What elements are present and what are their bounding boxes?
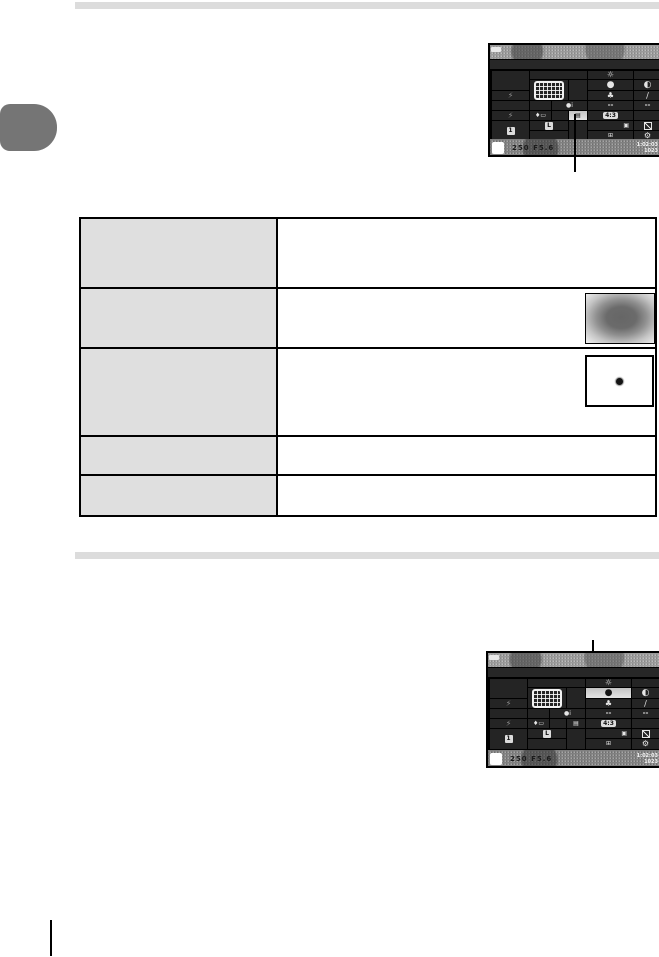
contrast-icon: ◐: [642, 689, 650, 698]
panel-cell-contrast: ◐: [632, 688, 659, 698]
panel-cell-metering: ●: [588, 80, 633, 90]
placeholder-value: --: [645, 102, 651, 109]
panel-cell-esp-metering: [528, 688, 566, 708]
spot-metering-diagram: [585, 355, 654, 407]
image-size-icon: ▤: [573, 721, 579, 727]
shots-remaining: 1023: [644, 759, 658, 765]
panel-cell-empty: [569, 121, 587, 141]
touch-shutter-icon: [490, 753, 502, 765]
panel-cell-frames: ▣: [588, 121, 633, 130]
image-quality-badge: L: [545, 122, 553, 130]
flash-icon: ⚡: [508, 112, 514, 120]
section-divider-bar-top: [75, 2, 659, 9]
table-description-cell: [278, 476, 655, 515]
table-term-cell: [81, 289, 278, 347]
panel-cell-contrast: ◐: [634, 80, 659, 90]
panel-cell-exposure-shift: [634, 121, 659, 130]
stabilizer-badge: 1: [505, 735, 513, 743]
frames-icon: ▣: [621, 731, 627, 737]
table-row: [81, 289, 655, 349]
panel-cell-stabilizer: 1: [492, 121, 529, 141]
remaining-readout: 1:02:031023: [637, 142, 658, 154]
panel-cell-unset: --: [632, 709, 659, 718]
image-size-icon: ▤: [575, 113, 581, 119]
image-quality-badge: L: [543, 730, 551, 738]
live-view-image-top: [490, 45, 659, 59]
panel-cell-exposure-shift: [632, 729, 659, 738]
panel-cell-white-balance: ☼: [586, 679, 631, 687]
shutter-speed-value: 250: [512, 144, 530, 152]
flash-icon: ⚡: [506, 700, 512, 708]
white-balance-icon: ☼: [605, 679, 612, 687]
chapter-side-tab: [0, 104, 57, 151]
table-row: [81, 219, 655, 289]
contrast-icon: ◐: [644, 81, 652, 90]
panel-info-row: [490, 60, 659, 69]
panel-cell-empty: [550, 719, 566, 728]
section-divider-bar-middle: [75, 552, 659, 559]
esp-metering-grid-icon: [534, 81, 564, 100]
panel-cell-empty: [552, 111, 568, 120]
panel-cell-empty: [490, 709, 527, 718]
table-row: [81, 476, 655, 515]
color-icon: ♣: [605, 700, 612, 708]
panel-cell-frames: ▣: [586, 729, 631, 738]
edit-icon: ⊞: [606, 741, 611, 747]
table-description-cell: [278, 219, 655, 287]
exposure-shift-icon: [642, 730, 650, 738]
sharpness-icon: ∕: [646, 92, 649, 100]
table-row: [81, 349, 655, 437]
table-description-cell: [278, 349, 655, 435]
info-icon: ●i: [564, 711, 571, 717]
aperture-value: F5.6: [533, 144, 554, 152]
callout-line-top: [574, 114, 576, 172]
panel-cell-empty: [632, 719, 659, 728]
exposure-readout: 250 F5.6: [512, 144, 554, 152]
remaining-readout: 1:02:031023: [637, 753, 658, 765]
aperture-value: F5.6: [531, 755, 552, 763]
aspect-ratio-badge: 4:3: [603, 112, 618, 119]
panel-info-row: [488, 668, 659, 677]
panel-cell-empty: [567, 729, 585, 749]
panel-cell-flash-comp: ♦▭: [528, 719, 549, 728]
table-row: [81, 437, 655, 476]
esp-metering-grid-icon: [532, 689, 562, 708]
panel-cell-empty: [567, 688, 585, 708]
aspect-ratio-badge: 4:3: [601, 720, 616, 727]
panel-cell-info: ●i: [550, 709, 585, 718]
live-view-image-top: [488, 653, 659, 667]
exposure-readout: 250 F5.6: [510, 755, 552, 763]
panel-cell-info: ●i: [552, 101, 587, 110]
center-weighted-metering-diagram: [585, 293, 655, 344]
touch-shutter-icon: [492, 142, 504, 154]
stabilizer-badge: 1: [507, 127, 515, 135]
panel-cell-aspect-ratio: 4:3: [588, 111, 633, 120]
panel-cell-empty: [634, 111, 659, 120]
panel-cell-flash-mode: ⚡: [492, 91, 529, 100]
panel-cell-empty: [530, 101, 551, 110]
table-term-cell: [81, 349, 278, 435]
gear-icon: ⚙: [642, 740, 649, 748]
flash-comp-icon: ♦▭: [535, 113, 546, 119]
panel-cell-flash-mode: ⚡: [492, 111, 529, 120]
placeholder-value: --: [608, 102, 614, 109]
flash-icon: ⚡: [508, 92, 514, 100]
shots-remaining: 1023: [644, 148, 658, 154]
panel-cell-white-balance: ☼: [588, 71, 633, 79]
super-control-panel: ☼ ● ◐ ⚡ ♣ ∕ ●i -- -- ⚡ ♦▭ ▤ 4:3 1 L ▣ ⊞ …: [488, 653, 659, 766]
white-balance-icon: ☼: [607, 71, 614, 79]
table-term-cell: [81, 476, 278, 515]
panel-cell-empty: [492, 71, 529, 90]
panel-cell-unset: --: [588, 101, 633, 110]
panel-cell-flash-comp: ♦▭: [530, 111, 551, 120]
spot-metering-dot: [616, 378, 623, 385]
panel-cell-empty: [528, 679, 585, 687]
placeholder-value: --: [643, 710, 649, 717]
recording-indicator: [489, 655, 499, 660]
table-term-cell: [81, 437, 278, 474]
panel-cell-image-quality: L: [530, 121, 568, 130]
panel-cell-metering: ●: [586, 688, 631, 698]
metering-table: [79, 217, 657, 517]
panel-cell-flash-mode: ⚡: [490, 719, 527, 728]
panel-cell-image-quality: L: [528, 729, 566, 738]
panel-cell-saturation: ♣: [586, 699, 631, 708]
metering-icon: ●: [607, 81, 615, 90]
panel-cell-saturation: ♣: [588, 91, 633, 100]
panel-cell-unset: --: [586, 709, 631, 718]
panel-cell-sharpness: ∕: [634, 91, 659, 100]
placeholder-value: --: [606, 710, 612, 717]
footer-divider-line: [50, 920, 52, 956]
info-icon: ●i: [566, 103, 573, 109]
panel-cell-edit: ⊞: [586, 739, 631, 749]
panel-cell-empty: [492, 101, 529, 110]
panel-cell-image-size: ▤: [567, 719, 585, 728]
panel-cell-image-size: ▤: [569, 111, 587, 120]
panel-cell-esp-metering: [530, 80, 568, 100]
table-description-cell: [278, 437, 655, 474]
metering-icon: ●: [605, 689, 613, 698]
shutter-speed-value: 250: [510, 755, 528, 763]
panel-cell-sharpness: ∕: [632, 699, 659, 708]
panel-cell-empty: [530, 71, 587, 79]
recording-indicator: [491, 47, 501, 52]
sharpness-icon: ∕: [644, 700, 647, 708]
panel-cell-flash-mode: ⚡: [490, 699, 527, 708]
flash-comp-icon: ♦▭: [533, 721, 544, 727]
color-icon: ♣: [607, 92, 614, 100]
panel-cell-unset: --: [634, 101, 659, 110]
panel-cell-aspect-ratio: 4:3: [586, 719, 631, 728]
camera-screenshot-bottom: ☼ ● ◐ ⚡ ♣ ∕ ●i -- -- ⚡ ♦▭ ▤ 4:3 1 L ▣ ⊞ …: [486, 651, 659, 768]
panel-cell-empty: [528, 709, 549, 718]
panel-cell-empty: [528, 739, 566, 749]
frames-icon: ▣: [623, 123, 629, 129]
panel-cell-empty: [569, 80, 587, 100]
panel-cell-settings: ⚙: [632, 739, 659, 749]
panel-cell-empty: [632, 679, 659, 687]
table-description-cell: [278, 289, 655, 347]
panel-cell-empty: [490, 679, 527, 698]
panel-cell-empty: [634, 71, 659, 79]
flash-icon: ⚡: [506, 720, 512, 728]
table-term-cell: [81, 219, 278, 287]
live-view-image-bottom: 250 F5.6 1:02:031023: [488, 750, 659, 766]
exposure-shift-icon: [644, 122, 652, 130]
panel-cell-stabilizer: 1: [490, 729, 527, 749]
